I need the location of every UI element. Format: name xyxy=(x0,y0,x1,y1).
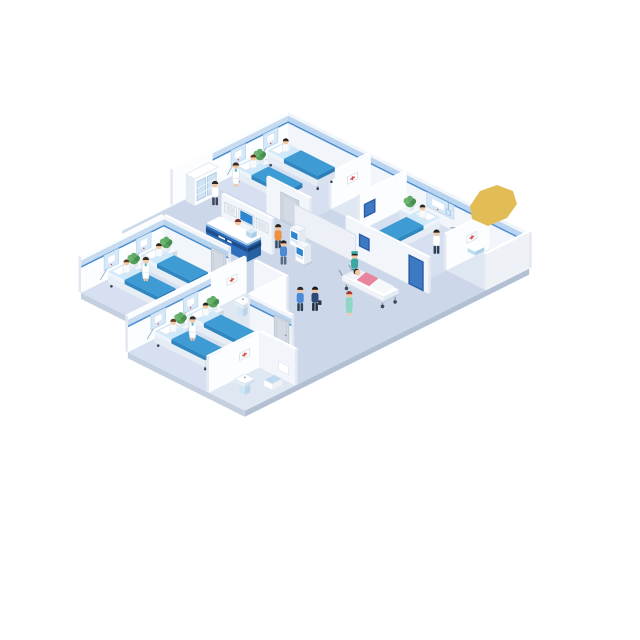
patient-ward-top-a xyxy=(282,138,289,151)
nurse-green-walking xyxy=(346,291,353,315)
illustration-canvas xyxy=(0,0,640,640)
patient-ward-right xyxy=(419,204,426,217)
patient-ward-bottom-a xyxy=(202,303,209,316)
yellow-blob xyxy=(470,185,517,226)
patient-ward-left-a xyxy=(156,243,163,256)
kiosk-2 xyxy=(294,240,312,266)
patient-ward-bottom-b xyxy=(170,319,177,332)
nurse-ward-left xyxy=(142,257,149,281)
hospital-isometric-illustration xyxy=(0,0,640,640)
nurse-ward-top xyxy=(232,162,239,186)
patient-ward-top-b xyxy=(250,154,257,167)
nurse-ward-bottom xyxy=(189,316,196,340)
patient-ward-left-b xyxy=(123,259,130,272)
